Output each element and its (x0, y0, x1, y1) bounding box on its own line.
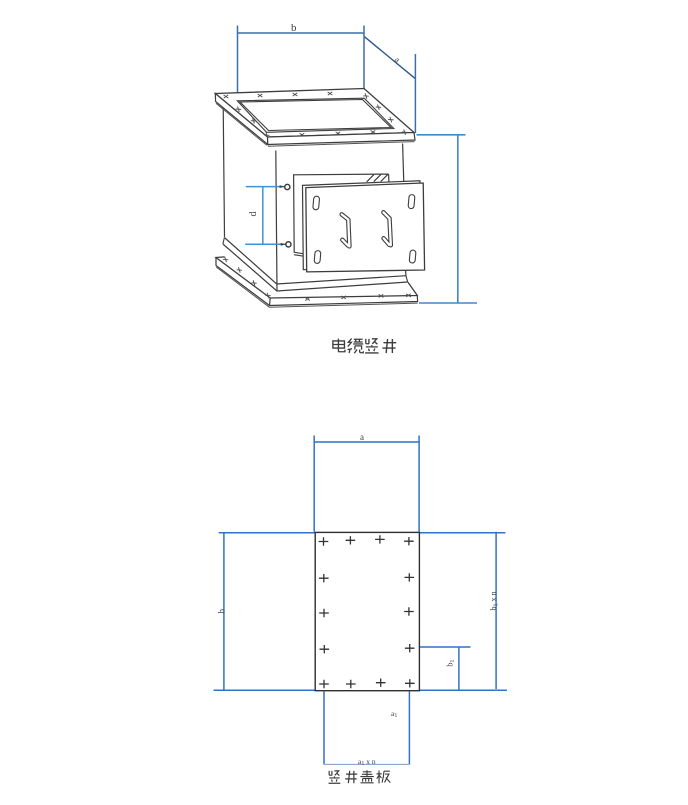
svg-text:b: b (216, 609, 226, 614)
svg-text:b1 x n: b1 x n (489, 592, 500, 611)
svg-text:a1: a1 (391, 709, 397, 719)
svg-text:a: a (360, 432, 364, 442)
svg-text:b1: b1 (446, 660, 457, 667)
svg-text:a1 x n: a1 x n (358, 757, 376, 767)
svg-text:d: d (248, 212, 259, 217)
svg-text:b: b (291, 22, 297, 34)
